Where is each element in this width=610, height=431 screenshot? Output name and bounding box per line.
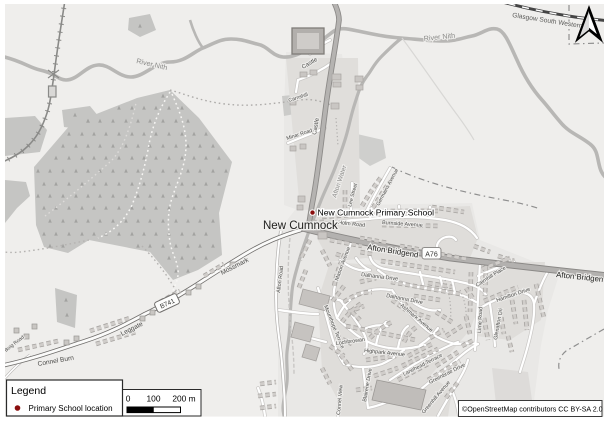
svg-text:A76: A76	[425, 252, 438, 259]
svg-text:0: 0	[126, 394, 131, 404]
svg-text:New Cumnock Primary School: New Cumnock Primary School	[318, 208, 435, 218]
svg-text:200 m: 200 m	[172, 394, 195, 404]
svg-text:100: 100	[147, 394, 161, 404]
svg-text:Primary School location: Primary School location	[29, 404, 113, 413]
svg-text:New Cumnock: New Cumnock	[263, 220, 338, 232]
svg-text:Legend: Legend	[11, 385, 46, 397]
svg-text:©OpenStreetMap contributors CC: ©OpenStreetMap contributors CC BY-SA 2.0	[462, 406, 603, 414]
